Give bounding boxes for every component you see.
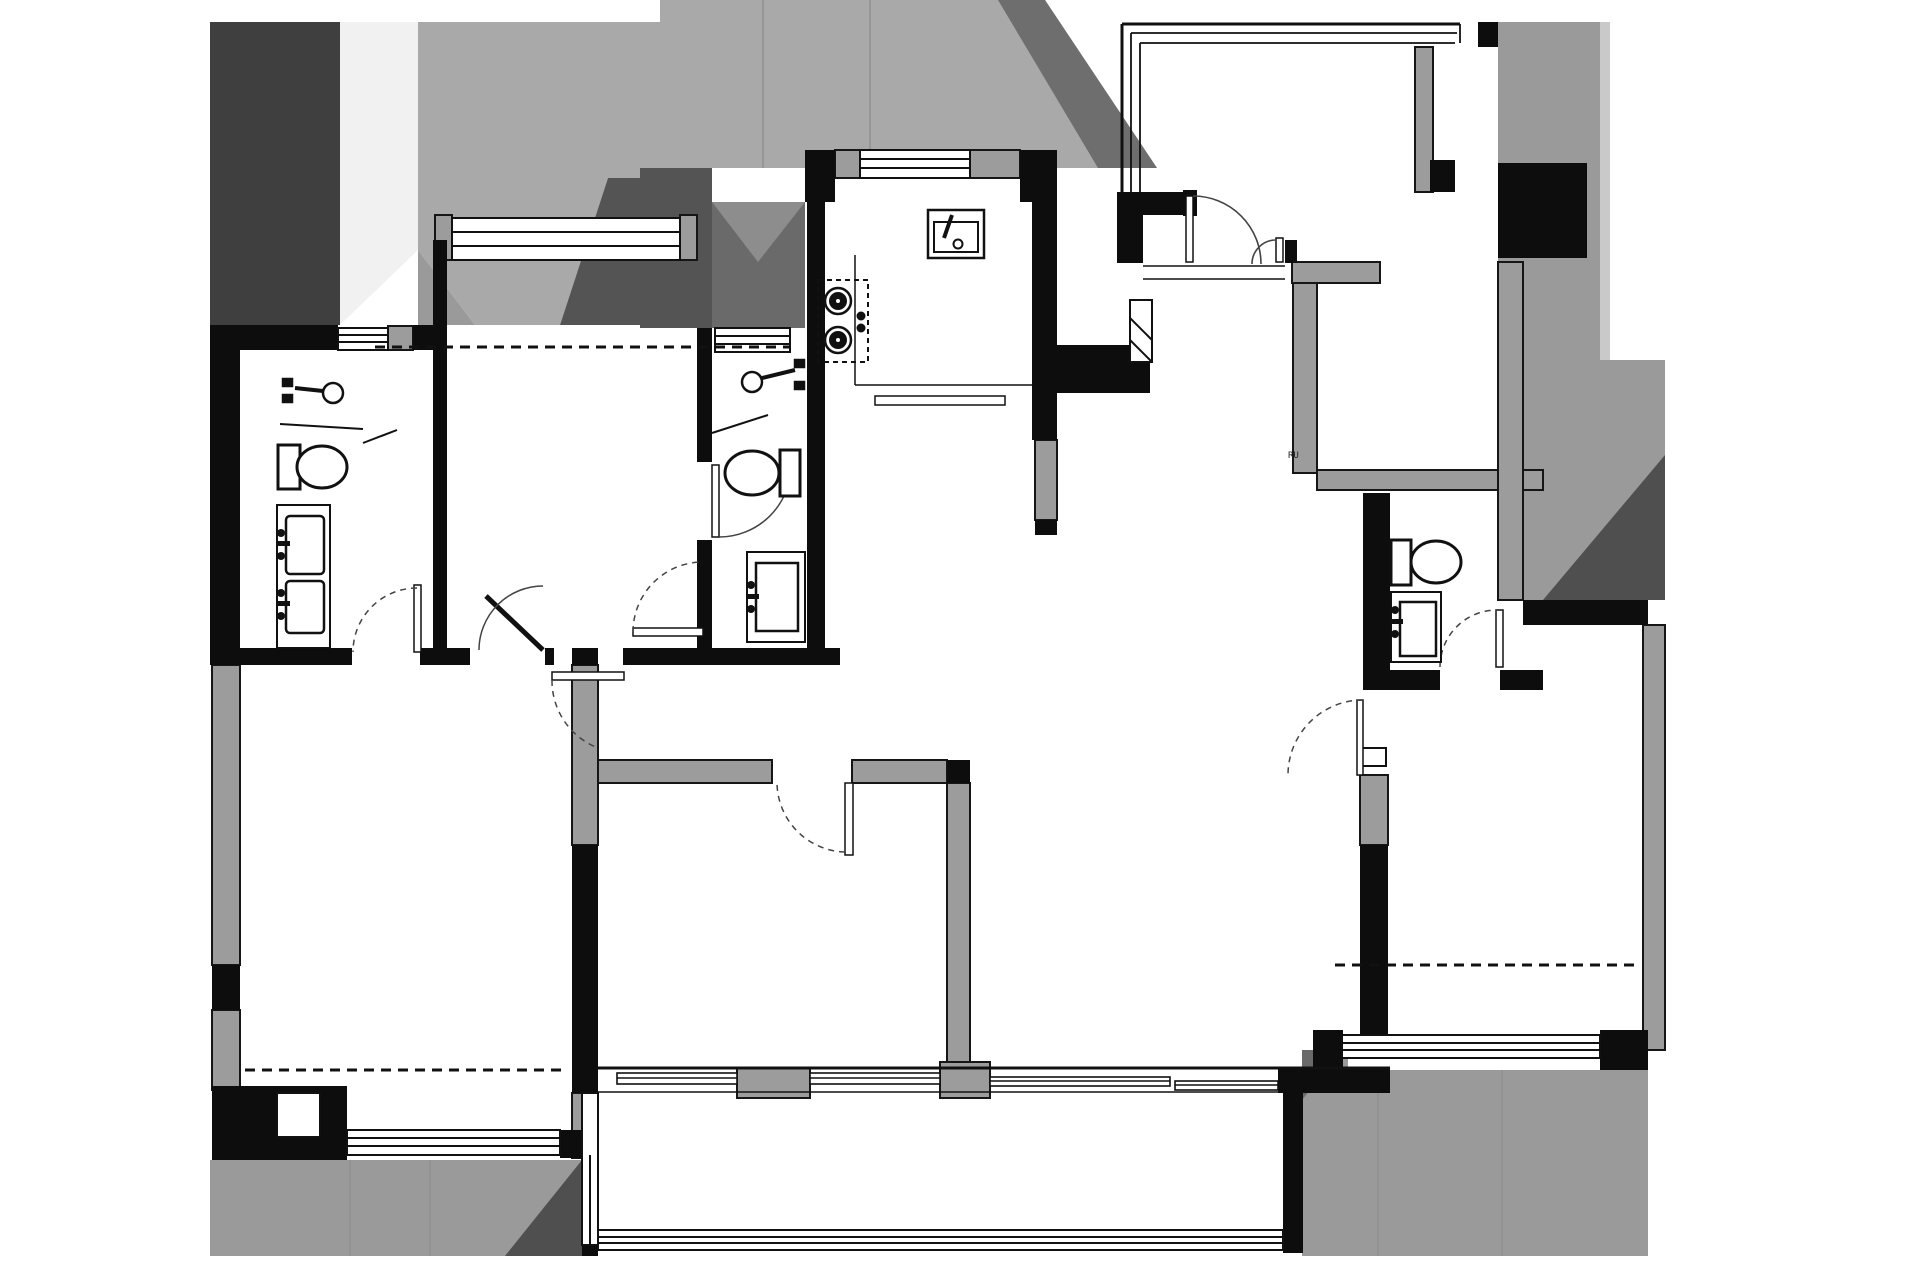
- door-post: [1285, 240, 1297, 263]
- wall-cap: [1035, 520, 1057, 535]
- wall-segment: [212, 965, 240, 1010]
- wall-segment: [1293, 283, 1317, 473]
- window-bedroom-bottom-left: [347, 1130, 560, 1155]
- bath-middle-glass: [712, 415, 768, 433]
- wall-segment: [1500, 670, 1543, 690]
- shower-head-left: [283, 379, 343, 403]
- wall-segment: [1498, 262, 1523, 600]
- dashed-lines: [245, 347, 1640, 1070]
- wall-segment: [852, 760, 947, 783]
- context-block: [1348, 1070, 1648, 1256]
- wall-segment: [545, 648, 554, 665]
- slider-living-2: [990, 1077, 1170, 1086]
- context-edge: [1600, 22, 1610, 360]
- shower-head-middle: [742, 360, 804, 392]
- toilet-middle: [725, 450, 800, 496]
- wall-pier: [737, 1068, 810, 1098]
- slider-living-1: [810, 1073, 940, 1084]
- wall-segment: [1283, 1093, 1303, 1253]
- wall-cap: [947, 760, 970, 783]
- wall-segment: [212, 1010, 240, 1090]
- wall-segment: [805, 150, 835, 202]
- wall-segment: [1313, 1030, 1343, 1070]
- wall-segment: [1032, 178, 1057, 440]
- door-entry-main: [1186, 196, 1261, 264]
- bath-left-glass: [363, 430, 397, 443]
- wall-segment: [212, 648, 352, 665]
- wall-segment: [1600, 1030, 1648, 1070]
- wall-segment: [572, 648, 598, 665]
- wall-segment: [212, 665, 240, 965]
- window-balcony-bottom: [598, 1230, 1283, 1250]
- toilet-right: [1391, 540, 1461, 585]
- wall-stub: [1478, 22, 1498, 47]
- wall-segment: [835, 150, 860, 178]
- kitchen-sink: [928, 210, 984, 258]
- wall-notch: [277, 1093, 320, 1137]
- wall-cap: [582, 1245, 598, 1256]
- wall-segment: [210, 325, 240, 665]
- window-kitchen: [860, 150, 970, 178]
- slider-living-3: [1175, 1081, 1278, 1090]
- door-entry-small: [1252, 238, 1283, 264]
- wall-segment: [1363, 493, 1390, 690]
- wall-segment: [1117, 192, 1143, 263]
- door-bedroom-top-left: [479, 586, 543, 650]
- stove-cooktop: [818, 280, 868, 362]
- window-bedroom-br-slot: [1361, 748, 1386, 766]
- wall-stub: [1430, 160, 1455, 192]
- context-block: [210, 22, 340, 325]
- wall-segment: [1360, 775, 1388, 845]
- wall-segment: [1140, 192, 1185, 215]
- wall-segment: [598, 760, 772, 783]
- wall-segment: [1292, 262, 1380, 283]
- wall-segment: [572, 665, 598, 845]
- wall-segment: [433, 240, 447, 665]
- wall-segment: [1523, 600, 1648, 625]
- wall-segment: [970, 150, 1020, 178]
- floorplan-canvas: RU: [0, 0, 1920, 1279]
- vanity-middle: [747, 552, 805, 642]
- wall-segment: [240, 325, 338, 350]
- vanity-right: [1391, 592, 1441, 662]
- door-bath-left: [353, 585, 421, 652]
- appliance-shaft: [1130, 300, 1152, 362]
- context-block: [340, 22, 418, 325]
- wall-segment: [1643, 625, 1665, 1050]
- door-hall: [633, 562, 703, 636]
- wall-segment: [420, 648, 470, 665]
- window-bedroom-bottom-right: [1342, 1035, 1600, 1058]
- wall-segment: [807, 202, 825, 660]
- window-balcony-left: [582, 1093, 598, 1245]
- window-bedroom-top-left: [452, 218, 680, 260]
- slider-bedroom-bc: [617, 1073, 737, 1084]
- door-bath-right: [1440, 610, 1503, 667]
- wall-segment: [572, 845, 598, 1093]
- wall-segment: [680, 215, 697, 260]
- wall-segment: [1278, 1068, 1390, 1093]
- door-bedroom-bottom-center: [777, 783, 853, 855]
- vanity-left: [277, 505, 330, 648]
- kitchen-passthrough-counter: [875, 396, 1005, 405]
- wall-pier: [1035, 440, 1057, 520]
- bath-left-halfwall: [280, 424, 363, 429]
- entry-glass-walls: [1122, 24, 1460, 192]
- wall-segment: [1363, 670, 1440, 690]
- toilet-left: [278, 445, 347, 489]
- wall-segment: [697, 540, 712, 665]
- tiny-annotation-label: RU: [1288, 451, 1299, 461]
- shaft-block: [1498, 163, 1587, 258]
- wall-segment: [947, 783, 970, 1068]
- wall-segment: [1360, 845, 1388, 1035]
- door-bedroom-bottom-right: [1288, 700, 1363, 775]
